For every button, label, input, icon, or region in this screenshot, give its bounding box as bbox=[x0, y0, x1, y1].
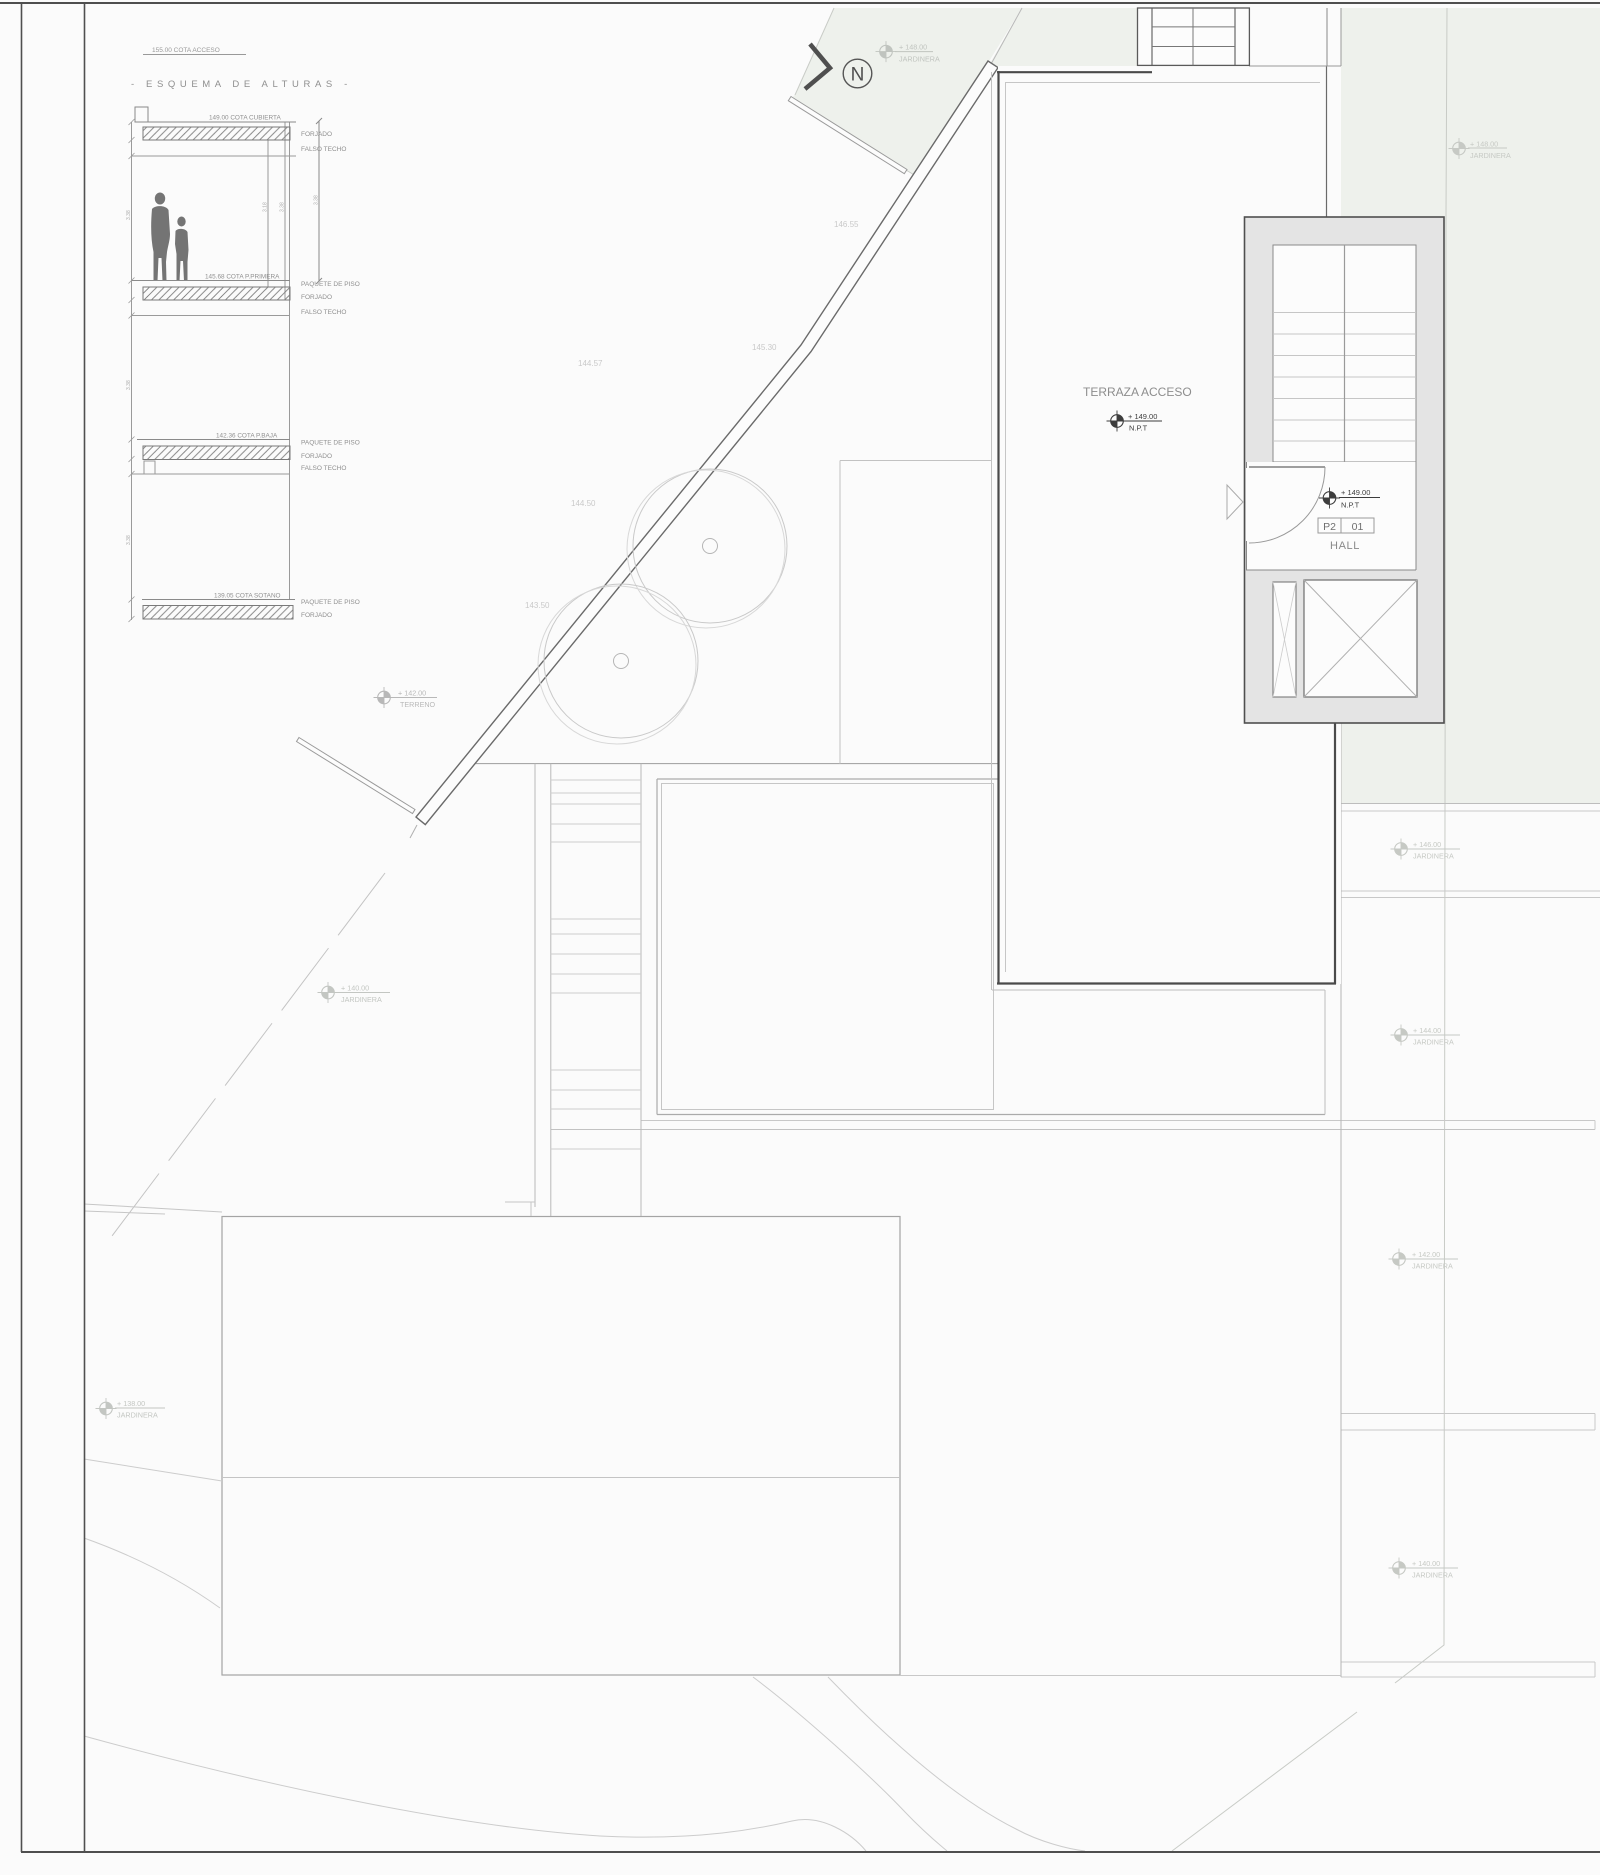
svg-text:142.36 COTA P.BAJA: 142.36 COTA P.BAJA bbox=[216, 433, 278, 440]
svg-text:TERRENO: TERRENO bbox=[400, 700, 436, 709]
svg-text:3.38: 3.38 bbox=[280, 202, 286, 212]
svg-text:01: 01 bbox=[1352, 521, 1364, 533]
svg-text:PAQUETE DE PISO: PAQUETE DE PISO bbox=[301, 440, 360, 447]
svg-text:JARDINERA: JARDINERA bbox=[117, 1411, 158, 1420]
svg-text:+ 138.00: + 138.00 bbox=[117, 1399, 145, 1408]
svg-text:JARDINERA: JARDINERA bbox=[899, 55, 940, 64]
svg-text:+ 148.00: + 148.00 bbox=[899, 43, 927, 52]
svg-text:N.P.T: N.P.T bbox=[1341, 501, 1360, 510]
svg-text:+ 144.00: + 144.00 bbox=[1413, 1026, 1441, 1035]
svg-text:FORJADO: FORJADO bbox=[301, 612, 332, 619]
svg-text:FORJADO: FORJADO bbox=[301, 131, 332, 138]
svg-text:3.18: 3.18 bbox=[263, 202, 269, 212]
svg-text:145.68 COTA P.PRIMERA: 145.68 COTA P.PRIMERA bbox=[205, 274, 280, 281]
svg-text:FORJADO: FORJADO bbox=[301, 294, 332, 301]
svg-text:3.38: 3.38 bbox=[314, 195, 320, 205]
svg-text:N: N bbox=[851, 65, 865, 86]
svg-text:+ 148.00: + 148.00 bbox=[1470, 140, 1498, 149]
svg-text:PAQUETE DE PISO: PAQUETE DE PISO bbox=[301, 281, 360, 288]
svg-text:146.55: 146.55 bbox=[834, 220, 859, 229]
svg-text:N.P.T: N.P.T bbox=[1129, 424, 1148, 433]
svg-text:JARDINERA: JARDINERA bbox=[1412, 1571, 1453, 1580]
svg-text:FALSO TECHO: FALSO TECHO bbox=[301, 465, 346, 472]
svg-text:+ 140.00: + 140.00 bbox=[1412, 1559, 1440, 1568]
svg-text:HALL: HALL bbox=[1330, 540, 1360, 552]
svg-text:145.30: 145.30 bbox=[752, 343, 777, 352]
svg-text:+ 146.00: + 146.00 bbox=[1413, 840, 1441, 849]
svg-text:143.50: 143.50 bbox=[525, 601, 550, 610]
svg-text:JARDINERA: JARDINERA bbox=[1412, 1262, 1453, 1271]
svg-text:FORJADO: FORJADO bbox=[301, 453, 332, 460]
svg-text:P2: P2 bbox=[1323, 521, 1336, 533]
svg-text:FALSO TECHO: FALSO TECHO bbox=[301, 146, 346, 153]
svg-text:144.50: 144.50 bbox=[571, 499, 596, 508]
svg-text:+ 140.00: + 140.00 bbox=[341, 984, 369, 993]
svg-text:JARDINERA: JARDINERA bbox=[1470, 151, 1511, 160]
svg-text:TERRAZA ACCESO: TERRAZA ACCESO bbox=[1083, 385, 1192, 399]
svg-text:FALSO TECHO: FALSO TECHO bbox=[301, 309, 346, 316]
svg-text:3.38: 3.38 bbox=[126, 210, 132, 220]
svg-text:PAQUETE DE PISO: PAQUETE DE PISO bbox=[301, 599, 360, 606]
svg-text:+ 149.00: + 149.00 bbox=[1341, 488, 1370, 497]
svg-text:- ESQUEMA DE ALTURAS -: - ESQUEMA DE ALTURAS - bbox=[131, 79, 352, 90]
svg-text:JARDINERA: JARDINERA bbox=[1413, 852, 1454, 861]
svg-text:JARDINERA: JARDINERA bbox=[1413, 1038, 1454, 1047]
svg-text:3.38: 3.38 bbox=[126, 535, 132, 545]
svg-text:JARDINERA: JARDINERA bbox=[341, 995, 382, 1004]
svg-text:+ 142.00: + 142.00 bbox=[1412, 1250, 1440, 1259]
svg-text:149.00 COTA CUBIERTA: 149.00 COTA CUBIERTA bbox=[209, 115, 281, 122]
svg-text:144.57: 144.57 bbox=[578, 359, 603, 368]
svg-text:155.00 COTA ACCESO: 155.00 COTA ACCESO bbox=[152, 47, 220, 54]
svg-text:3.38: 3.38 bbox=[126, 380, 132, 390]
svg-text:+ 142.00: + 142.00 bbox=[398, 689, 426, 698]
svg-text:+ 149.00: + 149.00 bbox=[1128, 412, 1157, 421]
svg-text:139.05 COTA SOTANO: 139.05 COTA SOTANO bbox=[214, 593, 281, 600]
